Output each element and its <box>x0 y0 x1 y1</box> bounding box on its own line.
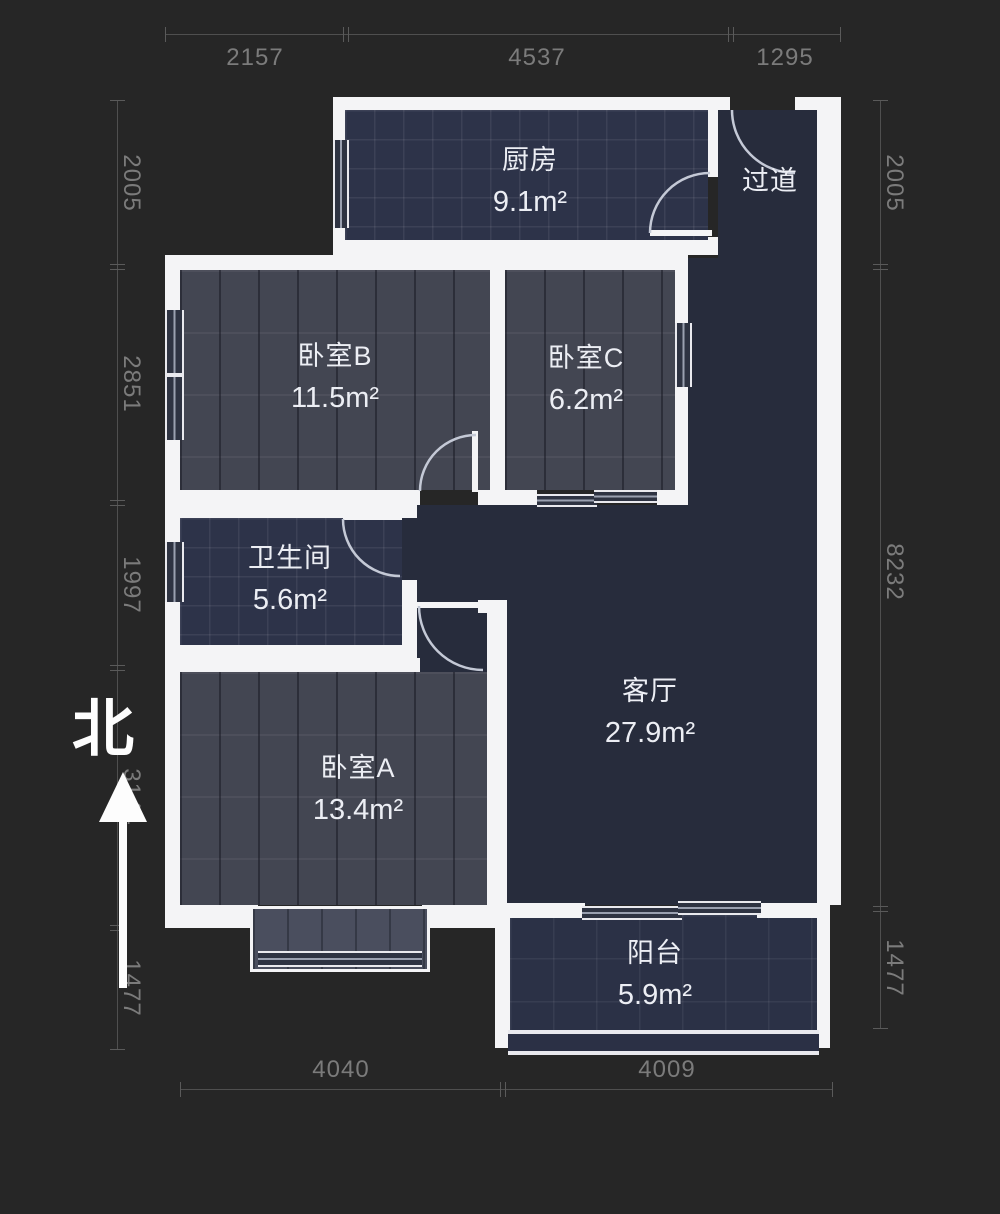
door-leaf-kitchen <box>650 230 712 236</box>
wall-bedroom-c-right <box>675 270 688 505</box>
room-area: 5.9m² <box>618 977 692 1013</box>
room-name: 卧室B <box>291 340 379 374</box>
dim-tick <box>110 500 125 501</box>
dim-tick <box>505 1082 506 1097</box>
label-living-room: 客厅 27.9m² <box>605 675 695 751</box>
wall-balcony-top-b <box>757 903 817 918</box>
wall-bc-divider <box>490 270 505 505</box>
window-balcony-bottom <box>508 1030 819 1055</box>
dim-line-top <box>165 34 840 35</box>
dim-tick <box>832 1082 833 1097</box>
dim-tick <box>343 27 344 42</box>
room-name: 过道 <box>742 165 798 199</box>
wall-bedroom-a-top <box>165 658 420 672</box>
window-kitchen-left <box>333 140 349 228</box>
wall-kitchen-right-b <box>708 237 718 255</box>
room-area: 6.2m² <box>548 382 625 418</box>
dim-tick <box>110 665 125 666</box>
dim-tick <box>733 27 734 42</box>
label-kitchen: 厨房 9.1m² <box>493 144 567 220</box>
dim-tick <box>110 269 125 270</box>
dim-right-3: 1477 <box>880 939 908 996</box>
room-name: 卧室C <box>548 342 625 376</box>
dim-tick <box>165 27 166 42</box>
hallway-floor-mid <box>688 258 817 505</box>
dim-tick <box>110 670 125 671</box>
room-name: 阳台 <box>618 937 692 971</box>
room-area: 27.9m² <box>605 715 695 751</box>
wall-kitchen-right-a <box>708 110 718 177</box>
window-bedroom-c-right <box>675 323 692 387</box>
dim-tick <box>110 505 125 506</box>
dim-tick <box>180 1082 181 1097</box>
dim-bottom-1: 4040 <box>312 1056 369 1084</box>
dim-tick <box>728 27 729 42</box>
bay-window <box>250 906 430 972</box>
floor-plan: 厨房 9.1m² 过道 卧室B 11.5m² 卧室C 6.2m² 卫生间 5.6… <box>0 0 1000 1214</box>
dim-tick <box>873 1028 888 1029</box>
dim-top-3: 1295 <box>756 44 813 72</box>
window-bedroom-b-left <box>165 310 184 440</box>
dim-tick <box>110 264 125 265</box>
sliding-door-bedroom-c <box>537 494 597 507</box>
wall-bedroom-a-right <box>487 600 507 910</box>
label-bedroom-a: 卧室A 13.4m² <box>313 752 403 828</box>
dim-left-2: 2851 <box>117 355 145 412</box>
room-name: 厨房 <box>493 144 567 178</box>
dim-right-2: 8232 <box>880 543 908 600</box>
wall-bedroom-a-bottom-a <box>165 905 258 928</box>
dim-top-2: 4537 <box>508 44 565 72</box>
wall-bedrooms-top <box>165 255 688 270</box>
door-leaf-bedroom-b <box>472 431 478 492</box>
wall-bedrooms-bottom-a <box>165 490 420 505</box>
north-arrow-head <box>99 772 147 822</box>
dim-top-1: 2157 <box>226 44 283 72</box>
dim-tick <box>500 1082 501 1097</box>
wall-balcony-right <box>817 905 830 1048</box>
room-area: 9.1m² <box>493 184 567 220</box>
dim-tick <box>110 100 125 101</box>
dim-tick <box>873 911 888 912</box>
dim-left-3: 1997 <box>117 556 145 613</box>
bay-window-glass <box>258 951 422 967</box>
north-label: 北 <box>72 678 134 768</box>
wall-balcony-top-a <box>495 903 585 918</box>
room-area: 5.6m² <box>248 582 332 618</box>
north-arrow-shaft <box>119 820 127 988</box>
room-area: 11.5m² <box>291 380 379 416</box>
dim-tick <box>348 27 349 42</box>
room-area: 13.4m² <box>313 792 403 828</box>
wall-bedrooms-bottom-b <box>478 490 537 505</box>
door-leaf-bedroom-a <box>417 602 483 608</box>
sliding-door-balcony-2 <box>678 901 761 915</box>
dim-tick <box>873 269 888 270</box>
label-balcony: 阳台 5.9m² <box>618 937 692 1013</box>
room-name: 客厅 <box>605 675 695 709</box>
dim-tick <box>873 100 888 101</box>
window-bathroom-left <box>165 542 184 602</box>
wall-balcony-left <box>495 905 510 1048</box>
dim-tick <box>873 264 888 265</box>
dim-tick <box>873 906 888 907</box>
label-bathroom: 卫生间 5.6m² <box>248 542 332 618</box>
sliding-door-balcony <box>582 906 682 920</box>
wall-kitchen-top <box>333 97 730 110</box>
dim-bottom-2: 4009 <box>638 1056 695 1084</box>
dim-tick <box>840 27 841 42</box>
wall-right-outer <box>817 97 841 905</box>
dim-line-bottom <box>180 1089 832 1090</box>
label-bedroom-c: 卧室C 6.2m² <box>548 342 625 418</box>
wall-bathroom-bottom <box>165 645 417 658</box>
wall-kitchen-bottom <box>333 240 718 255</box>
window-mullion <box>167 373 182 377</box>
room-name: 卧室A <box>313 752 403 786</box>
door-leaf-bathroom <box>343 514 402 520</box>
label-hallway: 过道 <box>742 165 798 199</box>
sliding-door-bedroom-c-2 <box>594 490 657 503</box>
room-name: 卫生间 <box>248 542 332 576</box>
dim-tick <box>110 1049 125 1050</box>
dim-left-1: 2005 <box>117 154 145 211</box>
dim-right-1: 2005 <box>880 154 908 211</box>
label-bedroom-b: 卧室B 11.5m² <box>291 340 379 416</box>
